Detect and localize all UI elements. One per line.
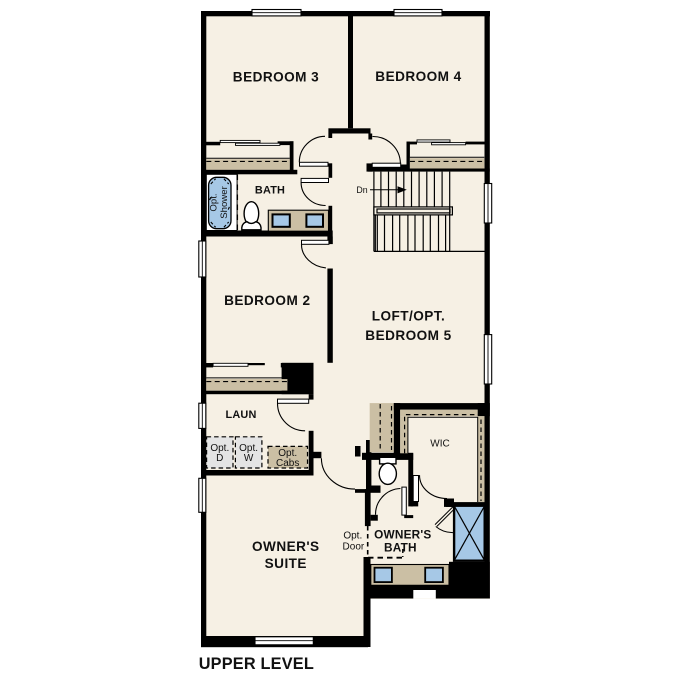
svg-text:BATH: BATH: [255, 184, 285, 196]
svg-text:D: D: [216, 453, 223, 464]
svg-text:Opt.: Opt.: [278, 448, 297, 459]
svg-text:BEDROOM 5: BEDROOM 5: [365, 328, 451, 343]
svg-text:OWNER'S: OWNER'S: [252, 539, 320, 554]
svg-text:Door: Door: [343, 541, 365, 552]
svg-text:W: W: [244, 453, 254, 464]
svg-text:UPPER LEVEL: UPPER LEVEL: [199, 655, 314, 673]
svg-text:LOFT/OPT.: LOFT/OPT.: [372, 309, 446, 324]
svg-text:Opt.: Opt.: [343, 530, 362, 541]
svg-text:BEDROOM 3: BEDROOM 3: [233, 70, 319, 85]
svg-text:OWNER'S: OWNER'S: [374, 527, 431, 541]
svg-text:BATH: BATH: [384, 541, 417, 555]
svg-text:BEDROOM 4: BEDROOM 4: [375, 69, 461, 84]
svg-text:SUITE: SUITE: [265, 556, 307, 571]
svg-text:BEDROOM 2: BEDROOM 2: [224, 293, 310, 308]
svg-text:Dn: Dn: [356, 185, 367, 195]
svg-text:LAUN: LAUN: [225, 409, 256, 421]
svg-text:Cabs: Cabs: [276, 458, 299, 469]
svg-text:WIC: WIC: [430, 439, 449, 450]
svg-text:Shower: Shower: [219, 185, 230, 218]
